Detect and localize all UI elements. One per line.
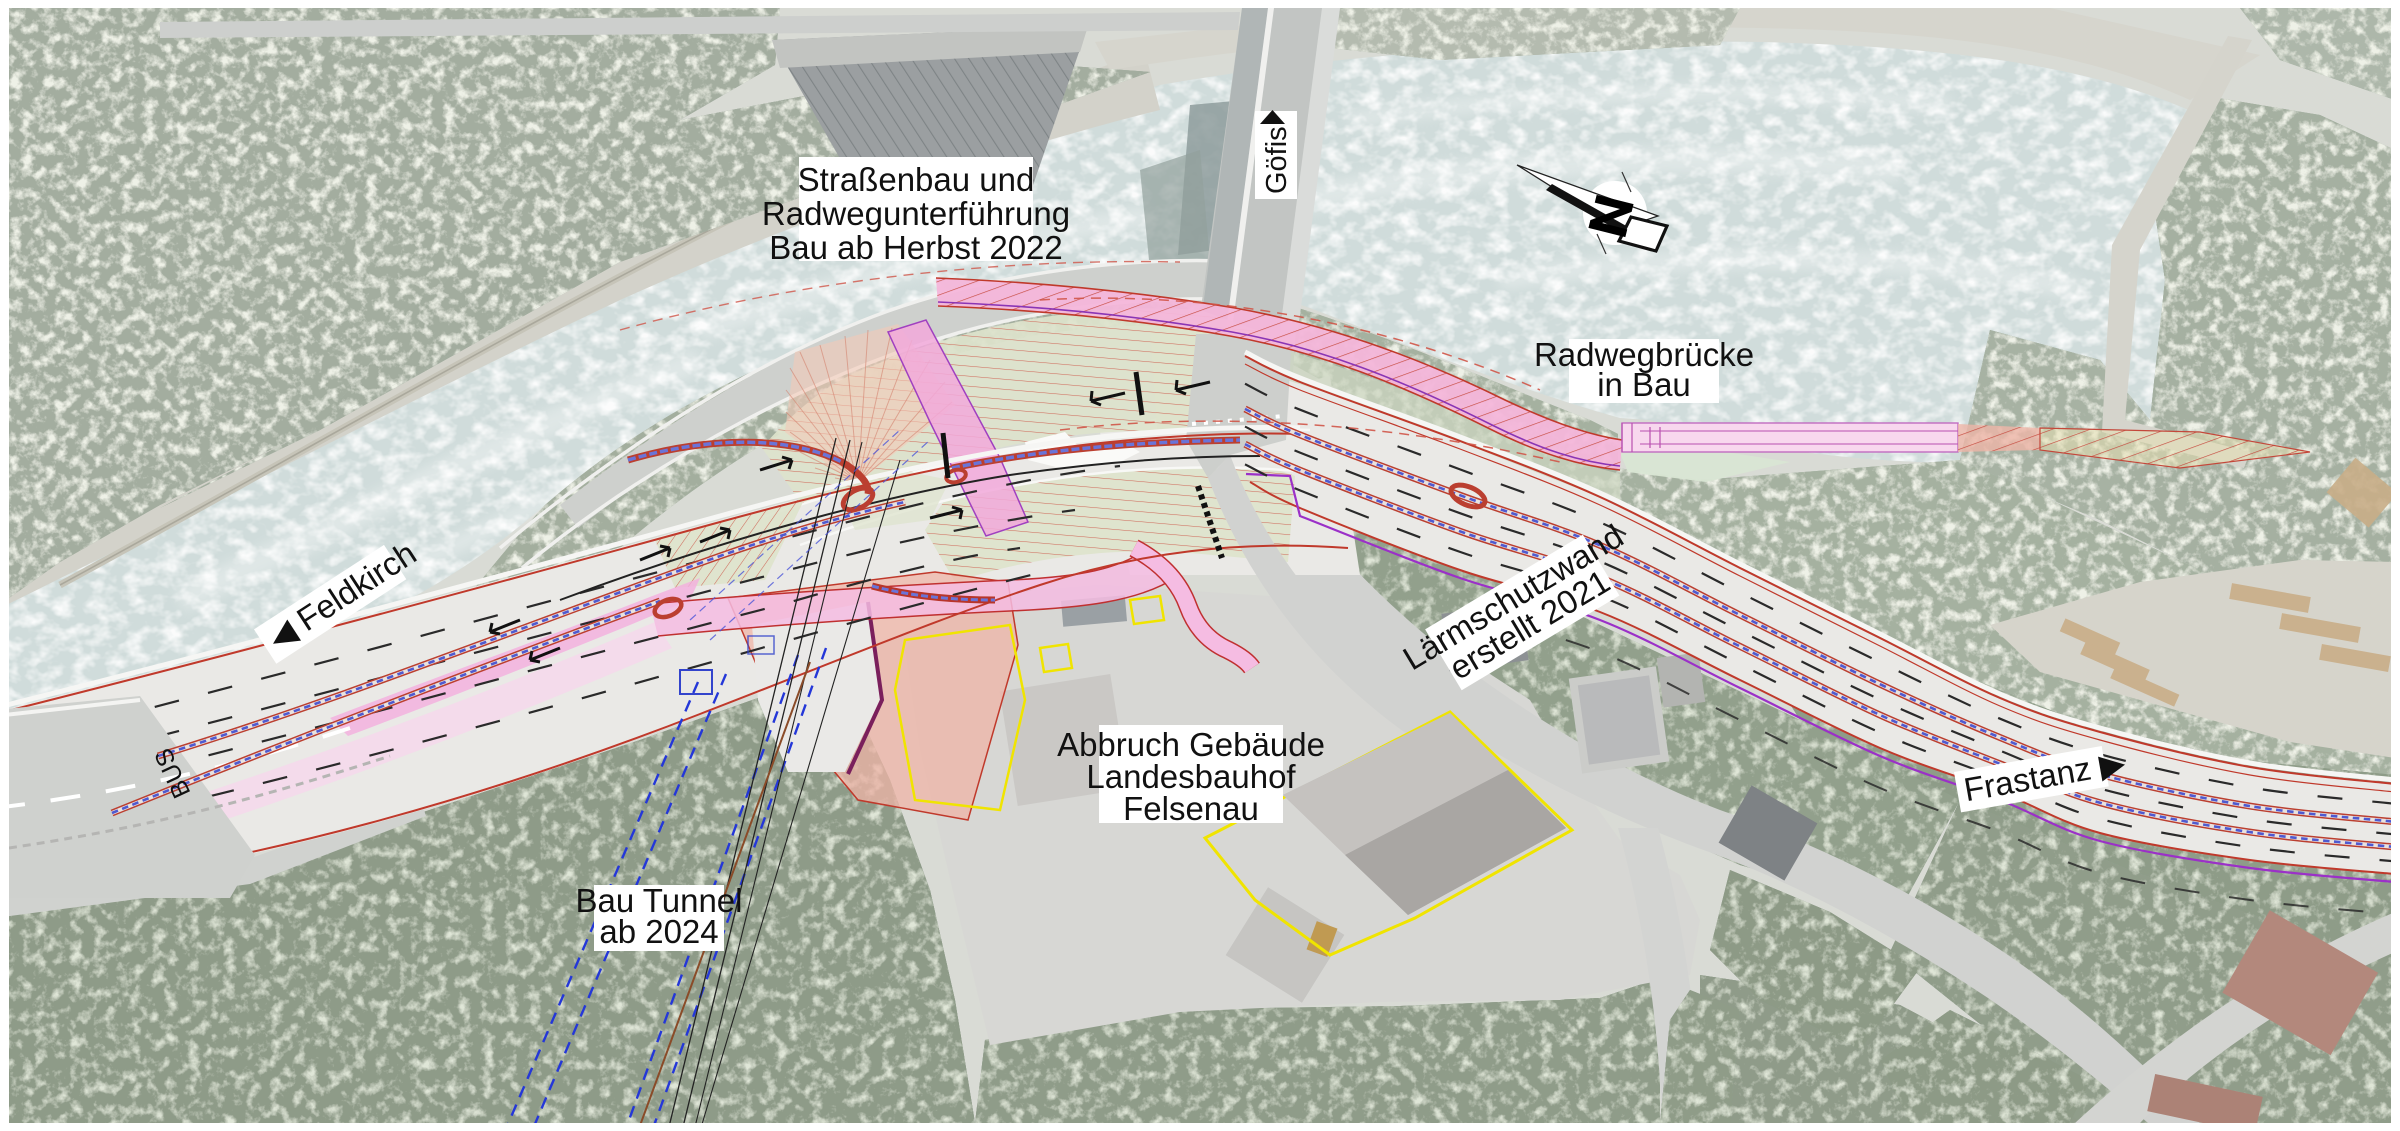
svg-text:Göfis: Göfis (1261, 126, 1293, 194)
svg-text:Straßenbau und: Straßenbau und (798, 161, 1035, 198)
svg-text:Radwegunterführung: Radwegunterführung (762, 195, 1070, 232)
svg-text:Bau ab Herbst 2022: Bau ab Herbst 2022 (769, 229, 1063, 266)
svg-text:ab 2024: ab 2024 (599, 913, 718, 950)
svg-text:in Bau: in Bau (1597, 366, 1691, 403)
svg-text:Felsenau: Felsenau (1123, 790, 1259, 827)
